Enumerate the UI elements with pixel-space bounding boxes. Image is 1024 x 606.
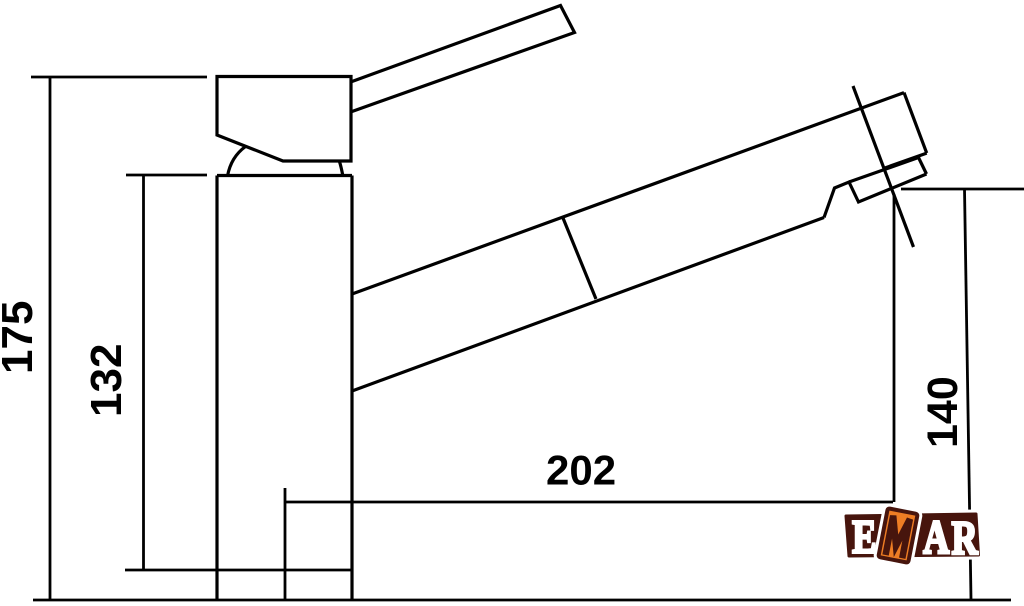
- svg-text:175: 175: [0, 301, 42, 374]
- svg-text:R: R: [952, 512, 978, 565]
- svg-text:A: A: [923, 511, 949, 564]
- svg-text:E: E: [852, 511, 876, 564]
- svg-text:132: 132: [82, 344, 131, 417]
- svg-text:202: 202: [546, 447, 616, 494]
- svg-text:140: 140: [919, 376, 967, 448]
